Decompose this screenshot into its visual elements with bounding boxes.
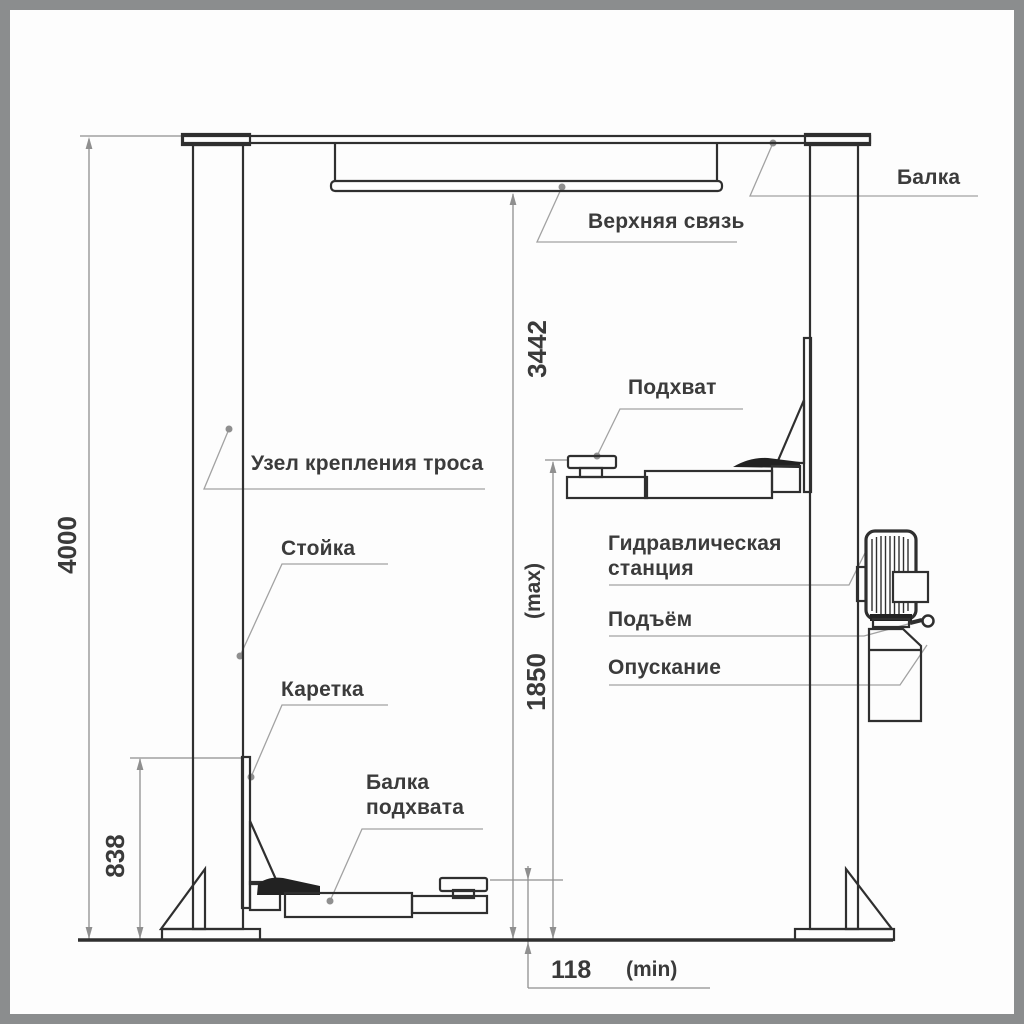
right-carriage-arm (567, 338, 811, 498)
left-column (161, 145, 260, 940)
pad-beam-label-line2: подхвата (366, 795, 464, 820)
dim-carriage-height: 838 (100, 786, 130, 926)
column-label: Стойка (281, 536, 355, 561)
upper-tie-label: Верхняя связь (588, 209, 745, 234)
beam-label: Балка (897, 165, 960, 190)
pad-beam-label: Балка подхвата (366, 770, 464, 820)
cable-mount-label: Узел крепления троса (251, 451, 483, 476)
lift-diagram: Балка Верхняя связь Подхват Узел креплен… (0, 0, 1024, 1024)
hydraulic-station-label: Гидравлическая станция (608, 531, 782, 581)
leader-lines (204, 143, 978, 901)
lower-label: Опускание (608, 655, 721, 680)
pad-label: Подхват (628, 375, 717, 400)
hydraulic-station-label-line2: станция (608, 556, 782, 581)
hydraulic-station-label-line1: Гидравлическая (608, 531, 782, 556)
lift-label: Подъём (608, 607, 692, 632)
top-beam (182, 134, 870, 145)
right-column (795, 145, 894, 940)
hydraulic-unit (857, 531, 934, 721)
carriage-label: Каретка (281, 677, 364, 702)
dim-min-pad-height: 118 (551, 956, 591, 985)
dim-total-height: 4000 (52, 475, 82, 615)
dim-tie-height: 3442 (522, 279, 552, 419)
pad-beam-label-line1: Балка (366, 770, 464, 795)
drawing-svg (0, 0, 1024, 1024)
dim-min-suffix: (min) (626, 958, 677, 982)
dim-max-pad-height: 1850 (521, 612, 551, 752)
upper-tie (331, 143, 722, 191)
leader-dots (226, 140, 777, 905)
